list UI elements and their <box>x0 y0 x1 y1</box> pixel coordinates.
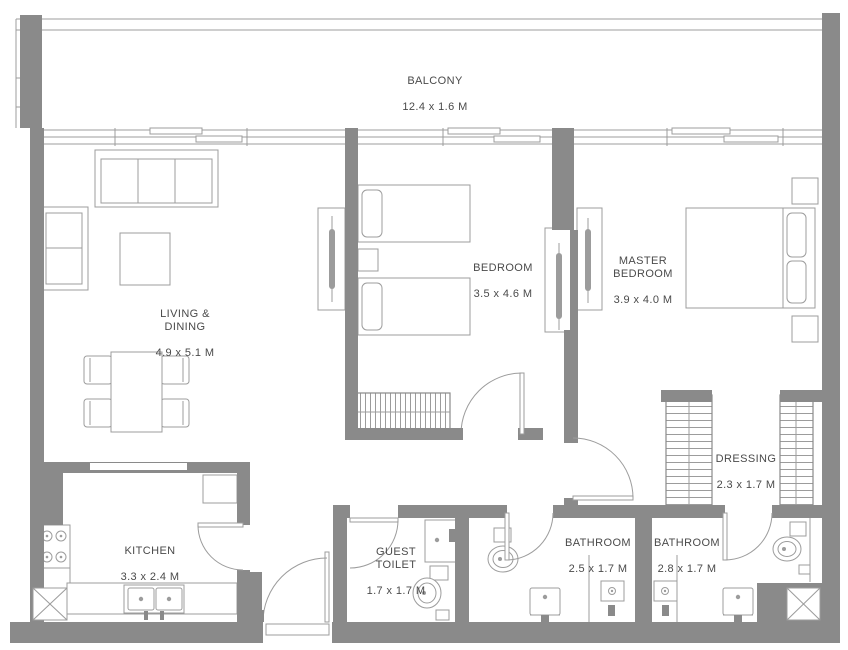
tv-unit-bedroom <box>545 228 572 332</box>
master-suite-door <box>573 438 633 500</box>
room-dims: 2.5 x 1.7 M <box>565 563 631 576</box>
tv-unit-master <box>577 208 602 310</box>
wardrobe-dressing-left <box>666 395 712 508</box>
room-name: BATHROOM <box>654 537 720 550</box>
floor-plan: BALCONY 12.4 x 1.6 M LIVING & DINING 4.9… <box>0 0 848 650</box>
room-label-dressing: DRESSING 2.3 x 1.7 M <box>716 440 777 505</box>
room-label-bedroom: BEDROOM 3.5 x 4.6 M <box>473 249 533 314</box>
entrance-door <box>255 552 329 622</box>
fridge <box>203 475 237 503</box>
room-label-bathroom-2: BATHROOM 2.8 x 1.7 M <box>654 524 720 589</box>
room-dims: 1.7 x 1.7 M <box>367 585 426 598</box>
toilet-bathroom-1 <box>488 528 518 572</box>
nightstand-master-top <box>792 178 818 204</box>
wardrobe-bedroom <box>352 393 450 431</box>
shaft-left <box>33 588 67 620</box>
coffee-table <box>120 233 170 285</box>
room-name: KITCHEN <box>121 545 180 558</box>
toilet-bathroom-2 <box>773 516 810 582</box>
room-dims: 2.8 x 1.7 M <box>654 563 720 576</box>
room-name: MASTER BEDROOM <box>613 255 673 281</box>
room-dims: 12.4 x 1.6 M <box>402 101 467 114</box>
room-name: BEDROOM <box>473 262 533 275</box>
sofa <box>95 150 218 207</box>
room-dims: 3.5 x 4.6 M <box>473 288 533 301</box>
wardrobe-dressing-right <box>780 395 813 508</box>
single-bed-2 <box>358 278 470 335</box>
room-name: LIVING & DINING <box>156 308 215 334</box>
room-label-guest-toilet: GUEST TOILET 1.7 x 1.7 M <box>367 533 426 611</box>
room-name: GUEST TOILET <box>367 546 426 572</box>
sink-bathroom-2 <box>723 588 753 622</box>
shaft-right <box>787 588 820 620</box>
room-dims: 3.9 x 4.0 M <box>613 294 673 307</box>
room-label-balcony: BALCONY 12.4 x 1.6 M <box>402 62 467 127</box>
room-label-bathroom-1: BATHROOM 2.5 x 1.7 M <box>565 524 631 589</box>
nightstand-bedroom <box>358 249 378 271</box>
bedroom-door <box>455 373 524 440</box>
tv-unit-living <box>318 208 345 310</box>
single-bed-1 <box>358 185 470 242</box>
basin-guest-toilet <box>425 520 458 562</box>
nightstand-master-bottom <box>792 316 818 342</box>
kitchen-door <box>198 523 243 570</box>
room-name: DRESSING <box>716 453 777 466</box>
armchair <box>40 207 88 290</box>
double-bed-master <box>686 208 815 308</box>
room-label-master-bedroom: MASTER BEDROOM 3.9 x 4.0 M <box>613 242 673 320</box>
room-label-living-dining: LIVING & DINING 4.9 x 5.1 M <box>156 295 215 373</box>
room-dims: 3.3 x 2.4 M <box>121 571 180 584</box>
room-dims: 2.3 x 1.7 M <box>716 479 777 492</box>
room-name: BATHROOM <box>565 537 631 550</box>
bathroom-2-door <box>723 513 772 560</box>
room-name: BALCONY <box>402 75 467 88</box>
room-dims: 4.9 x 5.1 M <box>156 347 215 360</box>
room-label-kitchen: KITCHEN 3.3 x 2.4 M <box>121 532 180 597</box>
sink-bathroom-1 <box>530 588 560 622</box>
